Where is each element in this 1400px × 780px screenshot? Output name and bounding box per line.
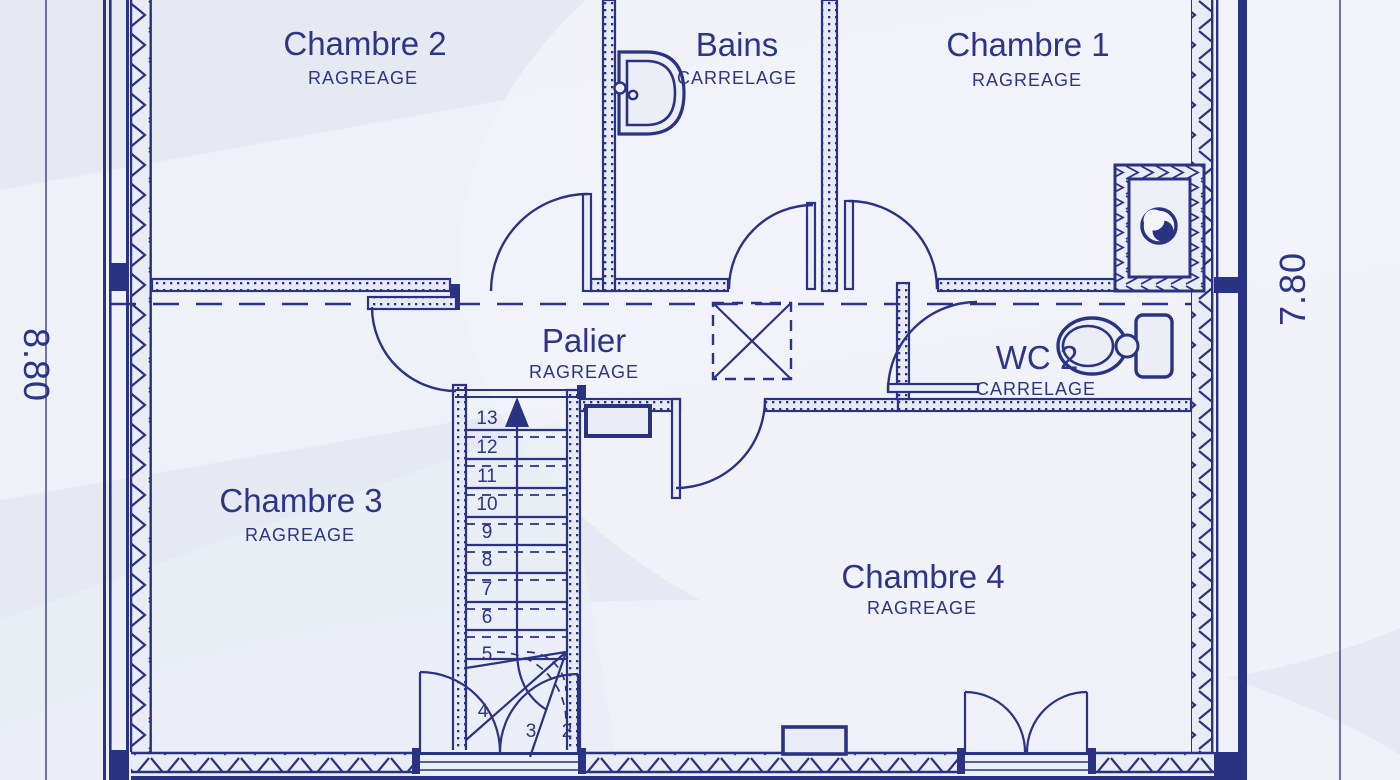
bains-door-leaf <box>807 203 815 289</box>
chambre4-door-leaf <box>672 399 680 498</box>
room-label-chambre4: Chambre 4 <box>841 558 1004 595</box>
room-finish-chambre2: RAGREAGE <box>308 68 418 88</box>
blueprint-floor-plan: 13 12 11 10 9 8 7 6 5 4 3 2 Chambre 2 RA… <box>0 0 1400 780</box>
step-number: 6 <box>482 607 493 628</box>
toilet-tank <box>1136 315 1172 377</box>
room-finish-wc2: CARRELAGE <box>976 379 1096 399</box>
left-wall-insulation-hatch <box>131 0 151 752</box>
radiator-chambre4 <box>783 727 846 754</box>
chambre2-door-leaf <box>583 194 591 291</box>
room-finish-chambre1: RAGREAGE <box>972 70 1082 90</box>
step-number: 10 <box>476 494 497 515</box>
room-label-chambre2: Chambre 2 <box>283 25 446 62</box>
room-label-wc2: WC 2 <box>996 339 1079 376</box>
washbasin-icon <box>615 52 685 134</box>
step-number: 5 <box>482 644 493 665</box>
dimension-left: 8.80 <box>16 328 57 402</box>
room-label-palier: Palier <box>542 322 626 359</box>
palier-niche <box>586 406 650 436</box>
paper-background <box>0 0 1400 780</box>
chambre1-door-leaf <box>845 201 853 289</box>
step-number: 2 <box>562 721 573 742</box>
room-finish-chambre4: RAGREAGE <box>867 598 977 618</box>
wall-chambre2-bains <box>603 0 615 291</box>
room-label-chambre1: Chambre 1 <box>946 26 1109 63</box>
right-wall-insulation-hatch <box>1192 0 1212 752</box>
wall-wc-south <box>898 399 1191 411</box>
left-wall-outer-line <box>103 0 106 780</box>
wall-under-chambre2 <box>152 279 450 291</box>
room-label-chambre3: Chambre 3 <box>219 482 382 519</box>
room-finish-bains: CARRELAGE <box>677 68 797 88</box>
dimension-right: 7.80 <box>1272 252 1313 326</box>
step-number: 4 <box>478 701 489 722</box>
floor-plan-drawing: 13 12 11 10 9 8 7 6 5 4 3 2 Chambre 2 RA… <box>0 0 1400 780</box>
step-number: 12 <box>476 437 497 458</box>
step-number: 8 <box>482 550 493 571</box>
right-wall-outer-line <box>1238 0 1247 780</box>
room-finish-palier: RAGREAGE <box>529 362 639 382</box>
step-number: 3 <box>526 721 537 742</box>
wall-palier-north-left <box>368 297 456 309</box>
step-number: 11 <box>477 466 497 487</box>
step-number: 9 <box>482 522 493 543</box>
wall-palier-south-mid <box>765 399 898 411</box>
right-wall-pier <box>1214 277 1238 293</box>
wall-bains-chambre1 <box>822 0 837 291</box>
step-number: 13 <box>476 408 497 429</box>
room-label-bains: Bains <box>696 26 779 63</box>
step-number: 7 <box>482 579 493 600</box>
stair-wall-west <box>453 385 466 753</box>
wc2-door-leaf <box>888 384 978 392</box>
left-wall-pier <box>109 263 129 291</box>
duct-box <box>1115 165 1204 291</box>
room-finish-chambre3: RAGREAGE <box>245 525 355 545</box>
